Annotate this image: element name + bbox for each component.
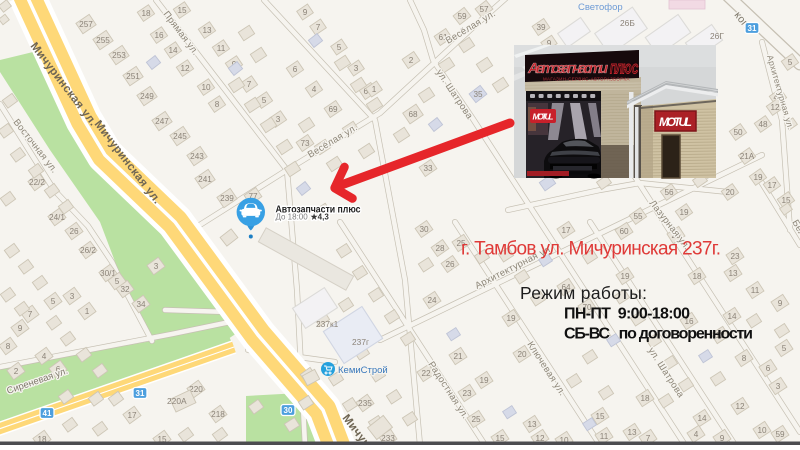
svg-text:19: 19	[620, 272, 630, 281]
svg-text:ПН-ПТ 9:00-18:00: ПН-ПТ 9:00-18:00	[564, 306, 690, 323]
svg-text:257: 257	[79, 20, 93, 29]
svg-text:3: 3	[776, 382, 781, 391]
svg-text:23: 23	[462, 389, 472, 398]
svg-text:247: 247	[155, 117, 169, 126]
svg-text:59: 59	[457, 12, 467, 21]
svg-text:19: 19	[679, 208, 689, 217]
svg-text:4: 4	[694, 430, 699, 439]
svg-text:253: 253	[112, 51, 126, 60]
svg-text:18: 18	[640, 394, 650, 403]
svg-text:24/1: 24/1	[49, 213, 65, 222]
svg-text:8: 8	[215, 100, 220, 109]
svg-text:23: 23	[730, 252, 740, 261]
svg-text:До 18:00: До 18:00	[276, 212, 309, 221]
svg-text:22/2: 22/2	[29, 178, 45, 187]
svg-text:3: 3	[276, 115, 281, 124]
svg-text:31: 31	[136, 389, 145, 398]
svg-text:17: 17	[127, 411, 137, 420]
svg-text:3: 3	[354, 64, 359, 73]
svg-text:2: 2	[409, 56, 414, 65]
svg-text:Светофор: Светофор	[578, 2, 623, 13]
svg-text:1: 1	[85, 307, 90, 316]
svg-text:9: 9	[778, 299, 783, 308]
svg-text:48: 48	[758, 120, 768, 129]
svg-text:59: 59	[775, 430, 785, 439]
svg-text:55: 55	[633, 212, 643, 221]
svg-text:30: 30	[419, 225, 429, 234]
svg-text:1: 1	[372, 85, 377, 94]
svg-text:14: 14	[168, 46, 178, 55]
svg-text:235: 235	[358, 399, 372, 408]
svg-text:5: 5	[115, 277, 120, 286]
svg-text:5: 5	[337, 43, 342, 52]
svg-text:13: 13	[527, 420, 537, 429]
svg-text:13: 13	[627, 428, 637, 437]
svg-text:237к1: 237к1	[316, 319, 339, 329]
svg-text:★4,3: ★4,3	[311, 212, 330, 221]
svg-text:8: 8	[742, 354, 747, 363]
svg-text:11: 11	[217, 44, 226, 53]
svg-text:14: 14	[697, 414, 707, 423]
svg-text:220А: 220А	[167, 396, 187, 406]
svg-text:15: 15	[177, 6, 187, 15]
svg-text:24: 24	[427, 296, 437, 305]
svg-text:10: 10	[201, 83, 211, 92]
svg-text:5: 5	[788, 58, 793, 67]
svg-text:243: 243	[190, 152, 204, 161]
svg-text:18: 18	[692, 272, 702, 281]
svg-text:2: 2	[14, 367, 19, 376]
svg-text:237г: 237г	[352, 337, 369, 347]
svg-text:Автозапчасти: Автозапчасти	[527, 60, 608, 77]
svg-text:3: 3	[154, 262, 159, 271]
svg-text:10: 10	[757, 426, 767, 435]
svg-text:MOTUL: MOTUL	[659, 115, 692, 129]
svg-text:241: 241	[198, 175, 212, 184]
svg-text:МАГАЗИН-СЕРВИС-АВТОРАЗБОРКА: МАГАЗИН-СЕРВИС-АВТОРАЗБОРКА	[543, 76, 630, 81]
svg-text:5: 5	[782, 344, 787, 353]
svg-text:6: 6	[766, 364, 771, 373]
svg-text:КемиСтрой: КемиСтрой	[338, 365, 388, 376]
svg-text:239: 239	[220, 194, 234, 203]
svg-text:16: 16	[154, 31, 164, 40]
svg-text:32: 32	[120, 285, 130, 294]
svg-text:19: 19	[753, 173, 763, 182]
svg-text:249: 249	[140, 92, 154, 101]
svg-text:26Г: 26Г	[710, 31, 724, 41]
svg-text:12: 12	[735, 402, 745, 411]
svg-text:20: 20	[517, 350, 527, 359]
svg-text:21А: 21А	[740, 152, 755, 161]
svg-text:50: 50	[733, 128, 743, 137]
svg-text:11: 11	[600, 432, 609, 441]
svg-text:11: 11	[751, 286, 760, 295]
svg-text:7: 7	[28, 310, 33, 319]
svg-text:245: 245	[173, 132, 187, 141]
svg-text:31: 31	[748, 24, 757, 33]
svg-text:26: 26	[69, 227, 79, 236]
svg-text:12: 12	[770, 103, 780, 112]
svg-text:26Б: 26Б	[620, 18, 635, 28]
svg-text:7: 7	[247, 80, 252, 89]
svg-text:MOTUL: MOTUL	[533, 112, 554, 122]
svg-text:73: 73	[300, 139, 310, 148]
svg-text:9: 9	[18, 324, 23, 333]
svg-text:255: 255	[96, 36, 110, 45]
svg-text:33: 33	[423, 164, 433, 173]
svg-text:6: 6	[293, 65, 298, 74]
svg-text:3: 3	[70, 292, 75, 301]
svg-text:13: 13	[202, 26, 212, 35]
svg-text:19: 19	[506, 314, 516, 323]
svg-text:12: 12	[180, 64, 190, 73]
svg-text:ПЛЮС: ПЛЮС	[610, 61, 639, 77]
svg-text:68: 68	[408, 110, 418, 119]
svg-text:4: 4	[312, 85, 317, 94]
svg-text:9: 9	[303, 8, 308, 17]
svg-text:25: 25	[471, 415, 481, 424]
svg-text:17: 17	[561, 226, 571, 235]
svg-text:СБ-ВС по договоренности: СБ-ВС по договоренности	[564, 326, 753, 343]
svg-text:56: 56	[664, 188, 674, 197]
svg-text:20: 20	[725, 188, 735, 197]
svg-text:18: 18	[141, 9, 151, 18]
svg-text:Режим работы:: Режим работы:	[520, 283, 647, 303]
svg-text:5: 5	[51, 297, 56, 306]
svg-text:15: 15	[595, 412, 605, 421]
svg-text:19: 19	[479, 376, 489, 385]
svg-text:4: 4	[42, 352, 47, 361]
svg-text:30: 30	[284, 406, 293, 415]
svg-text:39: 39	[536, 23, 546, 32]
svg-text:5: 5	[262, 96, 267, 105]
svg-text:17: 17	[767, 181, 777, 190]
svg-text:14: 14	[727, 312, 737, 321]
svg-text:60: 60	[619, 227, 629, 236]
svg-text:69: 69	[328, 105, 338, 114]
svg-text:г. Тамбов ул. Мичуринская 237г: г. Тамбов ул. Мичуринская 237г.	[461, 239, 721, 260]
svg-text:26: 26	[445, 260, 455, 269]
svg-text:21: 21	[453, 352, 463, 361]
svg-text:26/2: 26/2	[80, 246, 96, 255]
svg-text:218: 218	[211, 410, 225, 419]
svg-text:28: 28	[435, 244, 445, 253]
svg-text:35: 35	[473, 90, 483, 99]
svg-text:41: 41	[43, 409, 52, 418]
svg-text:34: 34	[136, 300, 146, 309]
svg-text:8: 8	[6, 342, 11, 351]
svg-text:7: 7	[316, 23, 321, 32]
svg-text:13: 13	[728, 269, 738, 278]
svg-text:251: 251	[126, 72, 140, 81]
